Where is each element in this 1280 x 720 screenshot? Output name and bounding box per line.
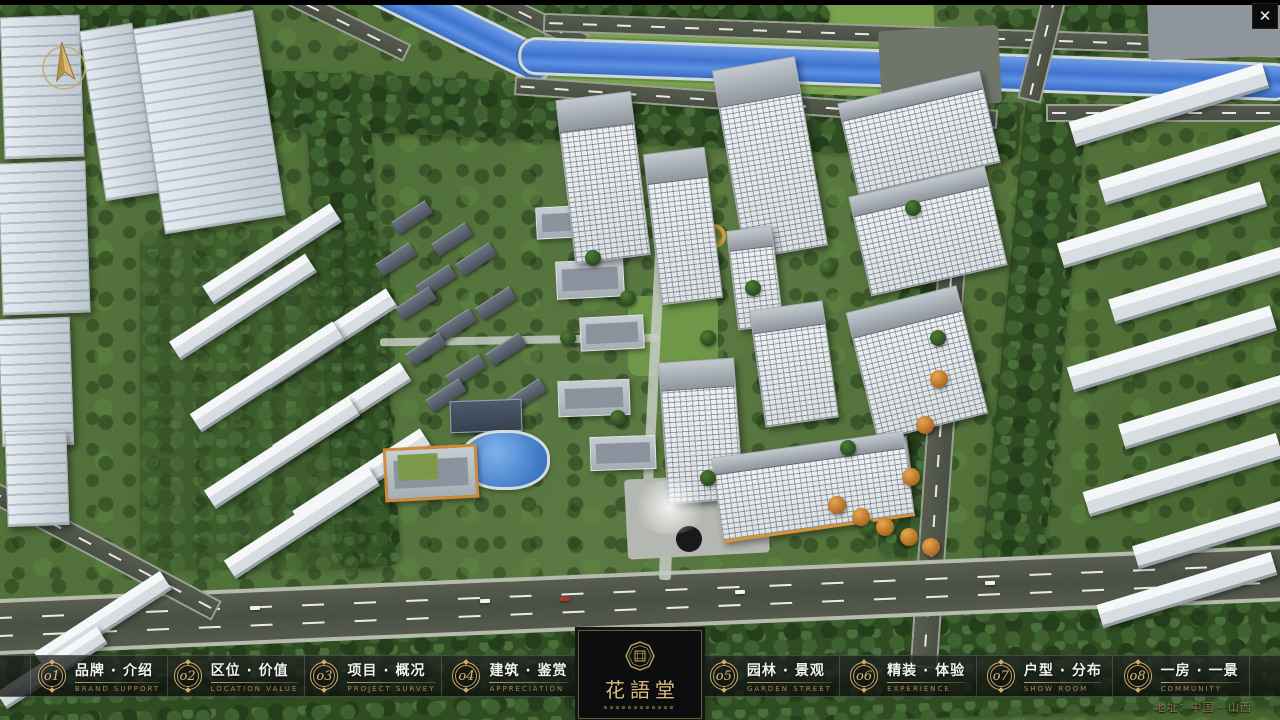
tree <box>700 470 716 486</box>
nav-item-caption: PROJECT SURVEY <box>347 685 435 693</box>
project-logo-panel[interactable]: 花語堂 <box>578 630 702 719</box>
vehicle <box>560 597 570 601</box>
autumn-tree <box>916 416 934 434</box>
nav-item-caption: BRAND SUPPORT <box>75 685 160 693</box>
nav-item-label: 一房 · 一景 <box>1161 660 1239 680</box>
highrise-building <box>0 161 91 316</box>
vehicle <box>985 581 995 585</box>
nav-item-caption: GARDEN STREET <box>747 685 832 693</box>
nav-item-label: 户型 · 分布 <box>1024 660 1102 680</box>
nav-number-badge: o4 <box>452 662 480 690</box>
vehicle <box>250 606 260 610</box>
nav-group-right: o5 园林 · 景观GARDEN STREET o6 精装 · 体验EXPERI… <box>702 656 1250 696</box>
nav-item-architecture[interactable]: o4 建筑 · 鉴赏APPRECIATION <box>441 656 578 696</box>
nav-item-label: 品牌 · 介绍 <box>75 660 153 680</box>
roof-garden <box>397 453 438 481</box>
tree <box>745 280 761 296</box>
nav-item-location[interactable]: o2 区位 · 价值LOCATION VALUE <box>167 656 304 696</box>
nav-group-left: o1 品牌 · 介绍BRAND SUPPORT o2 区位 · 价值LOCATI… <box>30 656 578 696</box>
nav-item-label: 区位 · 价值 <box>211 660 289 680</box>
tree <box>840 440 856 456</box>
nav-label-divider <box>1024 682 1102 683</box>
nav-number-badge: o3 <box>310 662 338 690</box>
nav-number-badge: o5 <box>710 662 738 690</box>
vehicle <box>735 590 745 594</box>
address-text: 地址：中国 · 山西 <box>1155 699 1253 715</box>
tree <box>620 290 636 306</box>
top-letterbox-bar <box>0 0 1280 5</box>
autumn-tree <box>852 508 870 526</box>
nav-item-label: 项目 · 概况 <box>347 660 425 680</box>
autumn-tree <box>902 468 920 486</box>
central-pavilion <box>449 399 522 433</box>
nav-item-garden[interactable]: o5 园林 · 景观GARDEN STREET <box>702 656 839 696</box>
seal-emblem-icon <box>625 641 655 671</box>
nav-item-number: o4 <box>458 669 474 684</box>
tree <box>700 330 716 346</box>
close-button[interactable]: ✕ <box>1252 3 1278 29</box>
compass-north-indicator <box>36 34 92 96</box>
highrise-building <box>0 317 74 447</box>
nav-item-floorplan[interactable]: o7 户型 · 分布SHOW ROOM <box>976 656 1113 696</box>
light-flare <box>630 480 710 534</box>
nav-item-number: o2 <box>180 669 196 684</box>
nav-item-label: 建筑 · 鉴赏 <box>489 660 567 680</box>
nav-item-brand[interactable]: o1 品牌 · 介绍BRAND SUPPORT <box>30 656 167 696</box>
nav-item-interior[interactable]: o6 精装 · 体验EXPERIENCE <box>839 656 976 696</box>
tree <box>905 200 921 216</box>
nav-item-number: o1 <box>44 669 60 684</box>
logo-tagline-bar <box>604 706 676 709</box>
compass-icon <box>36 34 92 96</box>
nav-item-label: 园林 · 景观 <box>747 660 825 680</box>
nav-label-divider <box>211 682 299 683</box>
nav-item-number: o5 <box>716 669 732 684</box>
midrise-building <box>579 314 645 351</box>
nav-item-number: o8 <box>1130 669 1146 684</box>
nav-number-badge: o2 <box>174 662 202 690</box>
nav-label-divider <box>887 682 965 683</box>
nav-item-number: o6 <box>856 669 872 684</box>
masterplan-3d-view[interactable] <box>0 0 1280 720</box>
vehicle <box>480 599 490 603</box>
nav-item-label: 精装 · 体验 <box>887 660 965 680</box>
autumn-tree <box>922 538 940 556</box>
nav-item-caption: COMMUNITY <box>1161 685 1222 693</box>
nav-number-badge: o6 <box>850 662 878 690</box>
midrise-building <box>589 435 656 471</box>
nav-number-badge: o8 <box>1124 662 1152 690</box>
nav-item-caption: SHOW ROOM <box>1024 685 1088 693</box>
nav-item-number: o7 <box>993 669 1009 684</box>
nav-label-divider <box>75 682 160 683</box>
nav-item-caption: APPRECIATION <box>489 685 564 693</box>
nav-item-caption: LOCATION VALUE <box>211 685 299 693</box>
nav-item-caption: EXPERIENCE <box>887 685 951 693</box>
nav-label-divider <box>347 682 435 683</box>
presentation-window: ✕ o1 品牌 · 介绍BRAND SUPPORT o2 区位 · 价值LOCA… <box>0 0 1280 720</box>
tree <box>585 250 601 266</box>
nav-label-divider <box>747 682 832 683</box>
nav-item-number: o3 <box>316 669 332 684</box>
nav-label-divider <box>1161 682 1239 683</box>
tree <box>560 330 576 346</box>
nav-label-divider <box>489 682 567 683</box>
project-logo-title: 花語堂 <box>600 674 680 703</box>
tree <box>610 410 626 426</box>
tree <box>820 260 836 276</box>
autumn-tree <box>876 518 894 536</box>
autumn-tree <box>828 496 846 514</box>
nav-item-views[interactable]: o8 一房 · 一景COMMUNITY <box>1112 656 1250 696</box>
autumn-tree <box>930 370 948 388</box>
nav-number-badge: o1 <box>38 662 66 690</box>
tree <box>930 330 946 346</box>
nav-number-badge: o7 <box>987 662 1015 690</box>
nav-item-project[interactable]: o3 项目 · 概况PROJECT SURVEY <box>304 656 441 696</box>
autumn-tree <box>900 528 918 546</box>
highrise-building <box>4 429 69 527</box>
